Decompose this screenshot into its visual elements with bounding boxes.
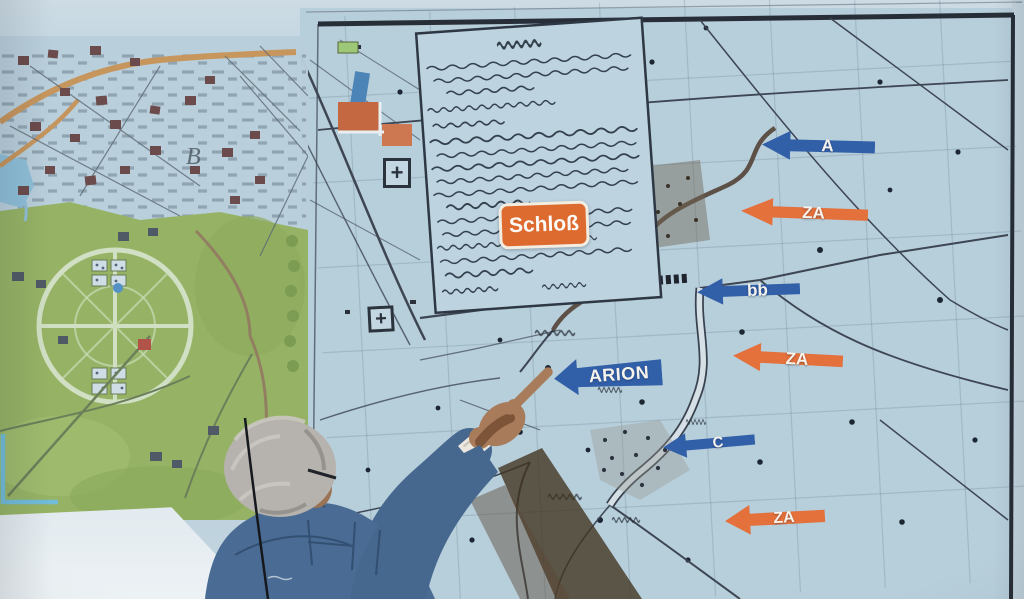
city-map-fragments bbox=[330, 40, 440, 340]
handwritten-document-panel bbox=[414, 16, 664, 323]
landmark-cross-icon: + bbox=[367, 305, 394, 332]
arrow-label-bb: bb bbox=[696, 273, 800, 308]
arrow-label-a: A bbox=[762, 128, 876, 165]
schloss-text: Schloß bbox=[509, 212, 580, 238]
red-building-block bbox=[338, 102, 380, 132]
presenter-head bbox=[224, 418, 336, 517]
landmark-cross-icon: + bbox=[383, 158, 411, 188]
photo-of-projection-screen: + + bbox=[0, 0, 1024, 599]
arrow-text: bb bbox=[696, 273, 800, 308]
arrow-label-za-1: ZA bbox=[740, 195, 868, 231]
landmark-cross-glyph: + bbox=[375, 307, 388, 331]
green-building-block bbox=[338, 42, 358, 53]
pointing-hand bbox=[469, 372, 548, 455]
landmark-cross-glyph: + bbox=[391, 160, 404, 186]
arrow-text: ZA bbox=[724, 498, 826, 538]
arrow-label-za-2: ZA bbox=[732, 339, 844, 378]
arrow-label-za-3: ZA bbox=[724, 498, 826, 538]
presenter-silhouette bbox=[140, 350, 720, 599]
document-border bbox=[416, 18, 661, 313]
arrow-text: A bbox=[762, 128, 876, 165]
red-building-block-2 bbox=[382, 124, 412, 146]
schloss-label: Schloß bbox=[498, 200, 590, 249]
arrow-text: ZA bbox=[732, 339, 844, 378]
arrow-text: ZA bbox=[740, 195, 868, 231]
